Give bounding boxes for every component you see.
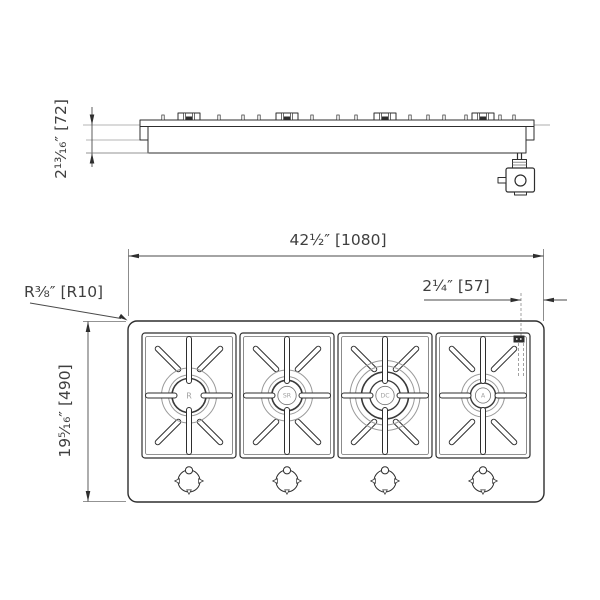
arrow-up-icon <box>86 322 91 333</box>
radius-dimension-label: R⅜″ [R10] <box>24 283 103 301</box>
valve-stub <box>498 178 506 184</box>
depth-dimension-label: 19⁵⁄₁₆″ [490] <box>56 364 74 457</box>
plan-view: 42½″ [1080] 2¼″ [57] R⅜″ [R10] 19⁵⁄₁₆″ [… <box>24 231 567 502</box>
burner-section-1: R <box>142 333 236 458</box>
knob-1 <box>175 467 204 495</box>
valve-port <box>515 175 526 186</box>
cooktop-top-slab <box>140 120 534 127</box>
burner-label: A <box>481 393 486 400</box>
arrow-right-icon <box>511 298 522 303</box>
burner-label: SR <box>283 393 292 400</box>
burner-caps-side <box>178 113 494 120</box>
arrow-left-icon <box>544 298 555 303</box>
dimension-depth: 19⁵⁄₁₆″ [490] <box>56 322 126 502</box>
side-view: 2¹³⁄₁₆″ [72] <box>52 99 550 195</box>
gas-valve <box>498 153 535 195</box>
arrow-down-icon <box>90 115 95 126</box>
arrow-right-icon <box>533 254 544 259</box>
dimension-radius: R⅜″ [R10] <box>24 283 128 321</box>
burner-cap-4 <box>472 113 494 120</box>
igniter-mark <box>514 336 525 378</box>
right-trim-lip <box>526 127 534 141</box>
burner-section-2: SR <box>240 333 334 458</box>
control-knobs <box>175 467 498 495</box>
arrow-up-icon <box>90 153 95 164</box>
dimension-offset: 2¼″ [57] <box>422 277 567 336</box>
burner-label: R <box>186 391 192 400</box>
burner-label: DC <box>380 393 389 400</box>
burner-section-4: A <box>436 333 530 458</box>
valve-nut <box>513 160 527 169</box>
offset-dimension-label: 2¼″ [57] <box>422 277 489 295</box>
grate-support-ticks <box>162 115 515 120</box>
cooktop-body-profile <box>148 127 526 154</box>
knob-2 <box>273 467 302 495</box>
dimension-width: 42½″ [1080] <box>129 231 544 321</box>
burner-cap-3 <box>374 113 396 120</box>
cooktop-technical-drawing: 2¹³⁄₁₆″ [72] 42½″ [1080] 2¼″ [57] R⅜″ [R <box>0 0 600 600</box>
left-trim-lip <box>140 127 148 141</box>
burner-cap-1 <box>178 113 200 120</box>
dimension-height: 2¹³⁄₁₆″ [72] <box>52 99 149 179</box>
valve-tab <box>515 192 527 195</box>
arrow-leader-icon <box>119 314 128 321</box>
knob-3 <box>371 467 400 495</box>
arrow-left-icon <box>129 254 140 259</box>
knob-4 <box>469 467 498 495</box>
burner-cap-2 <box>276 113 298 120</box>
height-dimension-label: 2¹³⁄₁₆″ [72] <box>52 99 70 179</box>
arrow-down-icon <box>86 491 91 502</box>
width-dimension-label: 42½″ [1080] <box>289 231 386 249</box>
burner-section-3: DC <box>338 333 432 458</box>
valve-body <box>506 168 535 192</box>
